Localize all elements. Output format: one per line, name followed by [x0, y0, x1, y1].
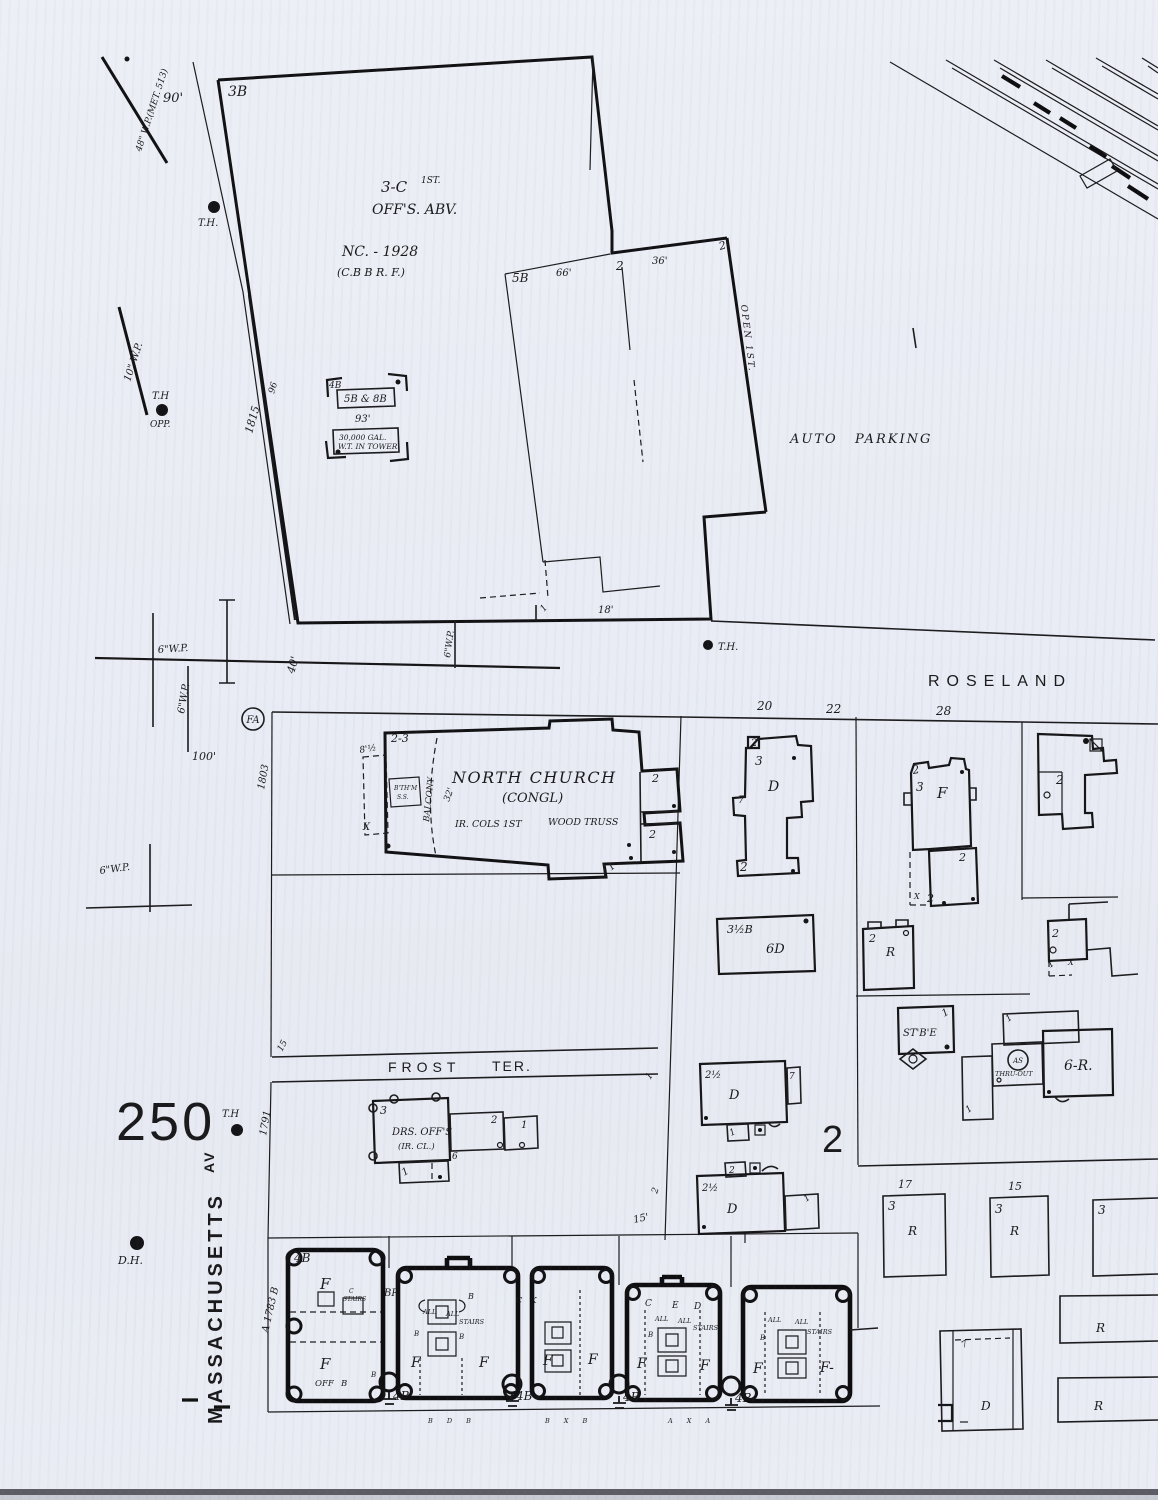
label-da: D: [728, 1088, 740, 1103]
label-ra-3: 3: [888, 1199, 896, 1213]
label-church-stories: 2-3: [390, 732, 409, 745]
right-edge-dwellings: 2 2 1 X: [1038, 734, 1138, 976]
label-drs-1a: 1: [521, 1120, 527, 1131]
label-apt-4b-1: 4B: [293, 1251, 311, 1265]
label-8half: 8'½: [359, 742, 378, 756]
label-db: D: [726, 1202, 738, 1217]
block2-dwellings: 2½ D 7 1 2 2 2½ D 1 15' 2 1: [632, 1061, 843, 1243]
label-all-4: ALL: [677, 1317, 691, 1325]
label-100ft: 100': [192, 750, 216, 763]
label-f-2r: 2: [958, 851, 966, 864]
doctors-offices: 3 DRS. OFF'S (IR. CL.) 2 1 1 6: [369, 1093, 538, 1183]
label-lrd-d: D: [980, 1399, 991, 1413]
label-rb-r: R: [1009, 1224, 1019, 1238]
label-apt-f5: F: [542, 1353, 554, 1369]
scan-edge: [0, 1489, 1158, 1500]
label-apt-b-g1: B: [370, 1371, 376, 1379]
label-30000-gal: 30,000 GAL.: [339, 433, 386, 442]
label-d-class: D: [767, 779, 779, 795]
label-b-1: B: [413, 1330, 419, 1338]
label-b-3: B: [647, 1331, 653, 1339]
label-rb-3: 3: [995, 1202, 1003, 1216]
label-ck: C K: [516, 1296, 540, 1305]
label-stairs-4: STAIRS: [807, 1328, 833, 1336]
label-iron-cols: IR. COLS 1ST: [454, 819, 522, 830]
label-north-church: NORTH CHURCH: [451, 768, 617, 787]
label-6r: 6-R.: [1064, 1058, 1093, 1074]
label-wt-in-tower: W.T. IN TOWER: [338, 442, 398, 451]
frost-terrace: FROST TER. 15 250 T.H 1791 AV: [116, 1038, 658, 1173]
label-d-2b: 2: [739, 860, 748, 874]
label-1st-story: 1ST.: [421, 176, 441, 186]
street-name-frost: FROST: [388, 1059, 460, 1075]
label-f-x: X: [913, 892, 920, 901]
label-b-4: B: [759, 1334, 765, 1342]
label-18ft: 18': [598, 605, 613, 616]
label-b2-1a: 1: [728, 1127, 737, 1138]
label-tick-1: 1: [539, 603, 550, 614]
label-apt-f8: F: [699, 1358, 711, 1374]
label-6in-wp-c: 6"W.P.: [176, 683, 192, 715]
sanborn-map-sheet: 48" W.P.(MET. 513) 10" W.P. 6"W.P. 1815 …: [0, 0, 1158, 1500]
label-apt-f2: F: [319, 1355, 331, 1373]
label-40ft: 40': [284, 655, 301, 676]
label-re-2b: 2: [1051, 927, 1059, 940]
sanborn-map-canvas: 48" W.P.(MET. 513) 10" W.P. 6"W.P. 1815 …: [0, 0, 1158, 1500]
water-pipes: 48" W.P.(MET. 513) 10" W.P. 6"W.P.: [86, 57, 192, 913]
label-apt-f4: F: [478, 1355, 490, 1371]
label-thru-out: THRU-OUT: [995, 1070, 1033, 1078]
label-d-7: 7: [738, 795, 745, 806]
label-3b: 3B: [228, 84, 247, 100]
label-6in-water-pipe-a: 6"W.P.: [99, 862, 131, 877]
label-rd-r: R: [1095, 1321, 1105, 1335]
label-stairs-3: STAIRS: [693, 1324, 719, 1332]
dwelling-f: 2 3 F 2 X 2: [904, 758, 978, 906]
label-church-2a: 2: [651, 772, 659, 785]
label-drs-3: 3: [380, 1104, 387, 1117]
label-re-r: R: [1093, 1399, 1103, 1413]
lower-right-dwellings: 17 3 R 15 3 R 3 R R 7 D: [883, 1178, 1158, 1431]
label-all-3: ALL: [654, 1315, 668, 1323]
label-letter-d: D: [693, 1302, 701, 1312]
gas-6r-cluster: 1 AS THRU-OUT 6-R. 1: [962, 1011, 1113, 1120]
label-93ft: 93': [355, 414, 370, 425]
roseland-street: 6"W.P. 6"W.P. 6"W.P. 40' FA 100' 1803 T.…: [95, 600, 1158, 791]
label-nc-1928: NC. - 1928: [341, 244, 418, 260]
label-porch-letters-1: B D B: [427, 1417, 477, 1425]
label-all-6: ALL: [794, 1318, 808, 1326]
apartment-row: 4B F C STAIRS F OFF B BR B 4B ALL ALL ST…: [287, 1250, 878, 1425]
label-survey-1815: 1815: [242, 404, 262, 434]
label-church-x: X: [362, 822, 371, 833]
label-2-story-a: 2: [615, 259, 624, 273]
house-number-22: 22: [825, 702, 841, 716]
house-number-20: 20: [756, 699, 773, 713]
label-5b: 5B: [512, 271, 529, 285]
label-survey-1803: 1803: [256, 764, 271, 791]
label-ra-r: R: [907, 1224, 917, 1238]
label-15ft: 15': [632, 1212, 649, 1226]
label-th-1: T.H.: [198, 218, 218, 229]
label-fire-alarm: FA: [245, 715, 259, 726]
label-90ft: 90': [163, 91, 183, 106]
label-all-1: ALL: [422, 1308, 436, 1316]
label-gas-1b: 1: [964, 1104, 974, 1115]
label-gas-1a: 1: [1004, 1013, 1014, 1024]
label-apt-off: OFF: [315, 1379, 335, 1389]
house-number-28: 28: [935, 704, 952, 718]
label-apt-off-b: B: [340, 1379, 347, 1389]
stable: 1 ST'B'E: [898, 1006, 954, 1069]
label-letter-e: E: [671, 1301, 679, 1311]
label-tower-4b: 4B: [328, 381, 342, 391]
label-church-2b: 2: [648, 828, 656, 841]
label-construction-code: (C.B B R. F.): [337, 266, 405, 279]
label-apt-f9: F: [752, 1361, 764, 1377]
label-th-2: T.H: [152, 391, 169, 402]
label-stable: ST'B'E: [903, 1028, 937, 1039]
label-offices-above: OFF'S. ABV.: [372, 202, 457, 218]
label-basement-1: B'TH'M: [393, 785, 418, 792]
label-dh: D.H.: [117, 1254, 143, 1267]
label-stable-1: 1: [940, 1007, 951, 1020]
water-tower: 4B 5B & 8B 93' 30,000 GAL. W.T. IN TOWER: [326, 374, 408, 461]
label-32ft: 32': [442, 787, 456, 804]
label-congl: (CONGL): [502, 791, 563, 806]
label-r2-r: R: [885, 945, 895, 959]
label-rot-2: 2: [650, 1186, 662, 1196]
label-apt-stairs-1: STAIRS: [343, 1296, 366, 1303]
label-6d-class: 3½B: [727, 923, 753, 936]
north-church: 2-3 8'½ B'TH'M S.S. BALCONY 32' NORTH CH…: [359, 719, 683, 879]
label-porch-letters-2: B X B: [544, 1417, 593, 1425]
label-lrd-7: 7: [960, 1339, 970, 1351]
street-name-av: AV: [201, 1151, 217, 1173]
street-name-ter: TER.: [492, 1058, 532, 1074]
railroad-tracks: [890, 58, 1158, 348]
label-apt-f10: F-: [819, 1360, 834, 1376]
label-f-class: F: [936, 784, 948, 802]
label-drs-1b: 1: [400, 1166, 411, 1179]
top-parcel: 1815 96 90' 3B T.H. T.H OPP. 3-C 1ST. OF…: [150, 57, 932, 624]
label-6in-wp-b: 6"W.P.: [157, 643, 188, 656]
label-survey-1791: 1791: [258, 1110, 273, 1137]
label-rot-1: 1: [644, 1071, 655, 1081]
label-apt-f6: F: [587, 1352, 599, 1368]
label-b2-7: 7: [789, 1072, 795, 1082]
label-th-opp: OPP.: [150, 420, 171, 430]
label-tower-5b8b: 5B & 8B: [344, 394, 387, 405]
label-10in-water-pipe: 10" W.P.: [122, 341, 145, 383]
house-number-15: 15: [1008, 1180, 1022, 1193]
label-porch-letters-3: A X A: [667, 1417, 716, 1425]
label-rc-3: 3: [1098, 1203, 1106, 1217]
label-survey-96: 96: [267, 381, 280, 395]
label-apt-f3: F: [410, 1355, 422, 1371]
gas-circle-icon: AS: [1012, 1057, 1023, 1065]
house-number-17: 17: [898, 1178, 912, 1191]
dwelling-d: 2 3 D 7 2: [733, 736, 813, 876]
label-apt-f1: F: [319, 1275, 331, 1293]
label-wood-truss: WOOD TRUSS: [548, 817, 619, 828]
street-name-massachusetts: MASSACHUSETTS: [205, 1192, 227, 1424]
label-all-2: ALL: [445, 1310, 459, 1318]
label-b-top: B: [467, 1292, 474, 1301]
label-basement-2: S.S.: [397, 794, 409, 801]
label-drs-2: 2: [490, 1115, 497, 1126]
label-25a: 2½: [704, 1070, 721, 1081]
label-3c: 3-C: [381, 178, 408, 196]
label-parking: PARKING: [854, 432, 932, 447]
dwelling-r2: 2 R: [863, 920, 914, 990]
label-letter-c: C: [645, 1299, 652, 1309]
label-r2-2: 2: [868, 932, 876, 945]
massachusetts-av: MASSACHUSETTS D.H. A 1783 B: [117, 1192, 281, 1424]
label-b-2: B: [458, 1333, 464, 1341]
label-th-4: T.H: [222, 1109, 239, 1120]
label-apt-c: C: [349, 1288, 354, 1295]
street-name-roseland: ROSELAND: [928, 673, 1072, 690]
label-6d: 6D: [766, 942, 785, 957]
block-number-2: 2: [822, 1119, 843, 1161]
label-th-3: T.H.: [718, 642, 738, 653]
label-apt-f7: F: [636, 1356, 648, 1372]
label-iron-clad: (IR. CL.): [398, 1141, 435, 1152]
label-re-2a: 2: [1055, 773, 1064, 787]
label-f-3: 3: [916, 780, 924, 794]
label-15-lot: 15: [276, 1038, 290, 1053]
label-stairs-2: STAIRS: [459, 1318, 485, 1326]
label-balcony: BALCONY: [422, 776, 437, 824]
label-a1783b: A 1783 B: [260, 1286, 281, 1335]
label-drs-offices: DRS. OFF'S: [391, 1127, 452, 1138]
label-all-5: ALL: [767, 1316, 781, 1324]
label-f-2b: 2: [926, 892, 934, 905]
label-25b: 2½: [701, 1183, 718, 1194]
label-auto: AUTO: [789, 432, 838, 447]
label-d-3: 3: [755, 754, 763, 768]
label-drs-6: 6: [452, 1152, 458, 1162]
sheet-number-250: 250: [116, 1092, 215, 1152]
label-36ft: 36': [652, 256, 667, 267]
label-re-x: X: [1067, 958, 1074, 967]
flats-6d: 3½B 6D: [717, 915, 815, 974]
label-66ft: 66': [556, 268, 571, 279]
label-d-2t: 2: [750, 738, 757, 749]
